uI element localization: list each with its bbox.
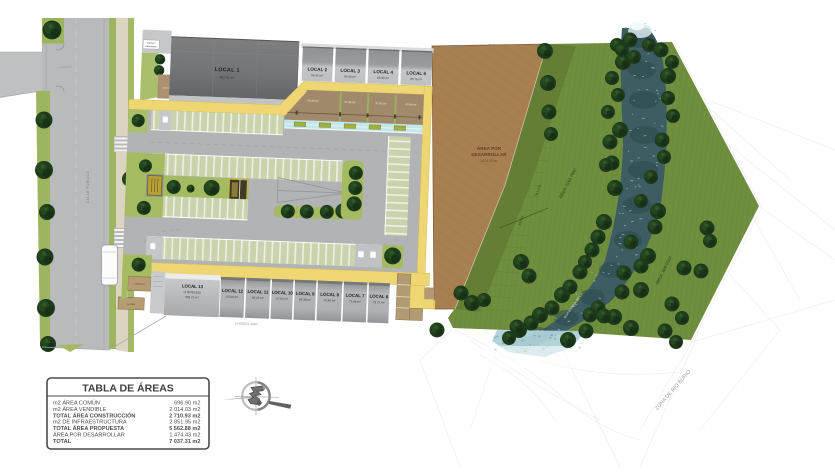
svg-text:TABLA DE ÁREAS: TABLA DE ÁREAS xyxy=(82,382,174,395)
svg-text:LOCAL 9: LOCAL 9 xyxy=(296,291,315,297)
svg-text:LOCAL 6: LOCAL 6 xyxy=(369,294,388,300)
svg-text:DESCARGA: DESCARGA xyxy=(146,45,158,48)
svg-text:2 851.95 m2: 2 851.95 m2 xyxy=(169,420,200,426)
svg-text:CALLE PUBLICA: CALLE PUBLICA xyxy=(86,171,90,204)
svg-text:43.94 m²: 43.94 m² xyxy=(405,102,416,106)
svg-text:TOTAL ÁREA PROPUESTA: TOTAL ÁREA PROPUESTA xyxy=(53,425,124,432)
svg-text:25.00: 25.00 xyxy=(488,43,496,47)
svg-text:TOTAL: TOTAL xyxy=(53,439,72,445)
svg-text:65.04 m²: 65.04 m² xyxy=(226,295,238,299)
svg-text:73.72 m²: 73.72 m² xyxy=(373,300,385,304)
svg-text:67.62 m²: 67.62 m² xyxy=(276,296,288,300)
svg-text:37.42 m²: 37.42 m² xyxy=(344,100,355,104)
svg-text:LOCAL 13: LOCAL 13 xyxy=(182,283,204,289)
svg-text:LOCAL 10: LOCAL 10 xyxy=(272,290,294,296)
svg-text:7 037.31 m2: 7 037.31 m2 xyxy=(169,439,200,445)
svg-text:m2 DE INFRAESTRUCTURA: m2 DE INFRAESTRUCTURA xyxy=(53,420,127,426)
svg-text:BASURA: BASURA xyxy=(127,303,136,306)
svg-text:TOTAL ÁREA CONSTRUCCIÓN: TOTAL ÁREA CONSTRUCCIÓN xyxy=(53,411,135,419)
svg-text:2 014.03 m2: 2 014.03 m2 xyxy=(169,407,200,413)
svg-text:LOCAL 11: LOCAL 11 xyxy=(247,289,269,295)
svg-text:381.22 m²: 381.22 m² xyxy=(185,295,199,300)
svg-text:LOCAL 8: LOCAL 8 xyxy=(320,292,339,298)
svg-text:LOCAL 1: LOCAL 1 xyxy=(215,67,240,74)
svg-text:2 710.93 m2: 2 710.93 m2 xyxy=(169,413,200,419)
svg-text:LOCAL 2: LOCAL 2 xyxy=(307,67,327,73)
svg-text:LOCAL 3: LOCAL 3 xyxy=(340,68,360,74)
svg-text:85.75 m²: 85.75 m² xyxy=(410,77,422,81)
svg-text:1474.43 m²: 1474.43 m² xyxy=(480,159,498,163)
svg-text:LOCAL 12: LOCAL 12 xyxy=(222,288,244,294)
svg-text:DEPOSITO: DEPOSITO xyxy=(134,284,145,286)
svg-text:ÁREA POR DESARROLLAR: ÁREA POR DESARROLLAR xyxy=(53,432,125,439)
svg-text:ÁREA POR: ÁREA POR xyxy=(477,145,502,151)
svg-text:LOCAL 4: LOCAL 4 xyxy=(373,69,393,75)
svg-text:462.51 m²: 462.51 m² xyxy=(219,75,235,80)
svg-text:56.39 m²: 56.39 m² xyxy=(307,99,318,103)
svg-text:86.48 m²: 86.48 m² xyxy=(344,74,356,78)
svg-text:696.90 m2: 696.90 m2 xyxy=(174,401,200,407)
svg-text:5 562.88 m2: 5 562.88 m2 xyxy=(169,426,200,432)
svg-text:37.92 m²: 37.92 m² xyxy=(375,101,386,105)
svg-text:m2 ÁREA VENDIBLE: m2 ÁREA VENDIBLE xyxy=(53,406,107,413)
svg-text:66.23 m²: 66.23 m² xyxy=(252,296,264,300)
svg-text:m2 ÁREA COMÚN: m2 ÁREA COMÚN xyxy=(53,400,100,407)
svg-text:LOCAL 7: LOCAL 7 xyxy=(346,293,365,299)
svg-text:71.88 m²: 71.88 m² xyxy=(349,299,361,303)
svg-text:69.36 m²: 69.36 m² xyxy=(299,297,311,301)
svg-text:(2 NIVELES): (2 NIVELES) xyxy=(183,290,200,295)
svg-text:H-426321-1907: H-426321-1907 xyxy=(445,44,466,48)
svg-text:LOCAL 5: LOCAL 5 xyxy=(406,70,426,76)
svg-text:CARGA Y: CARGA Y xyxy=(147,42,156,45)
svg-text:DESARROLLAR: DESARROLLAR xyxy=(471,152,507,157)
svg-text:70.48 m²: 70.48 m² xyxy=(323,298,335,302)
svg-text:1 474.43 m2: 1 474.43 m2 xyxy=(169,433,200,439)
svg-text:85.99 m²: 85.99 m² xyxy=(377,76,389,80)
svg-text:86.92 m²: 86.92 m² xyxy=(311,73,323,77)
